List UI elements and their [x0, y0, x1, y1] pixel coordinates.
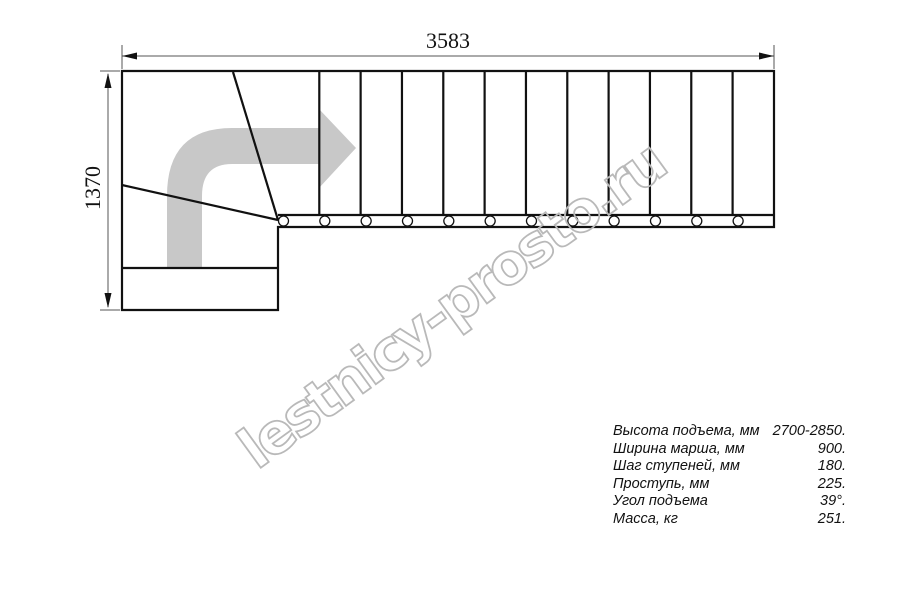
spec-label: Масса, кг	[613, 511, 678, 529]
spec-label: Проступь, мм	[613, 476, 709, 494]
bolt-circle	[402, 216, 412, 226]
spec-row: Ширина марша, мм 900.	[613, 441, 846, 459]
direction-arrow	[167, 109, 356, 268]
bolt-circle	[361, 216, 371, 226]
spec-label: Угол подъема	[613, 493, 708, 511]
bolt-circle	[320, 216, 330, 226]
stair-drawing-page: 3583 1370 lestnicy-prosto.ru Высота подъ…	[0, 0, 900, 600]
spec-label: Шаг ступеней, мм	[613, 458, 740, 476]
bolt-circle	[650, 216, 660, 226]
spec-row: Угол подъема 39°.	[613, 493, 846, 511]
dim-arrow-up-icon	[105, 73, 112, 88]
bolt-circle	[444, 216, 454, 226]
spec-label: Ширина марша, мм	[613, 441, 745, 459]
dim-arrow-right-icon	[759, 53, 774, 60]
spec-value: 900.	[818, 441, 846, 459]
spec-row: Высота подъема, мм 2700-2850.	[613, 423, 846, 441]
spec-value: 180.	[818, 458, 846, 476]
spec-value: 251.	[818, 511, 846, 529]
bolt-circle	[485, 216, 495, 226]
bolt-circle	[279, 216, 289, 226]
spec-value: 225.	[818, 476, 846, 494]
bolt-circle	[733, 216, 743, 226]
dimension-width-label: 3583	[426, 28, 470, 54]
spec-row: Масса, кг 251.	[613, 511, 846, 529]
spec-row: Проступь, мм 225.	[613, 476, 846, 494]
bolt-circle	[692, 216, 702, 226]
specs-table: Высота подъема, мм 2700-2850. Ширина мар…	[613, 423, 846, 528]
spec-row: Шаг ступеней, мм 180.	[613, 458, 846, 476]
spec-label: Высота подъема, мм	[613, 423, 760, 441]
dim-arrow-down-icon	[105, 293, 112, 308]
spec-value: 2700-2850.	[773, 423, 846, 441]
spec-value: 39°.	[820, 493, 846, 511]
dim-arrow-left-icon	[122, 53, 137, 60]
dimension-height-label: 1370	[80, 166, 106, 210]
riser-lines	[319, 72, 732, 215]
